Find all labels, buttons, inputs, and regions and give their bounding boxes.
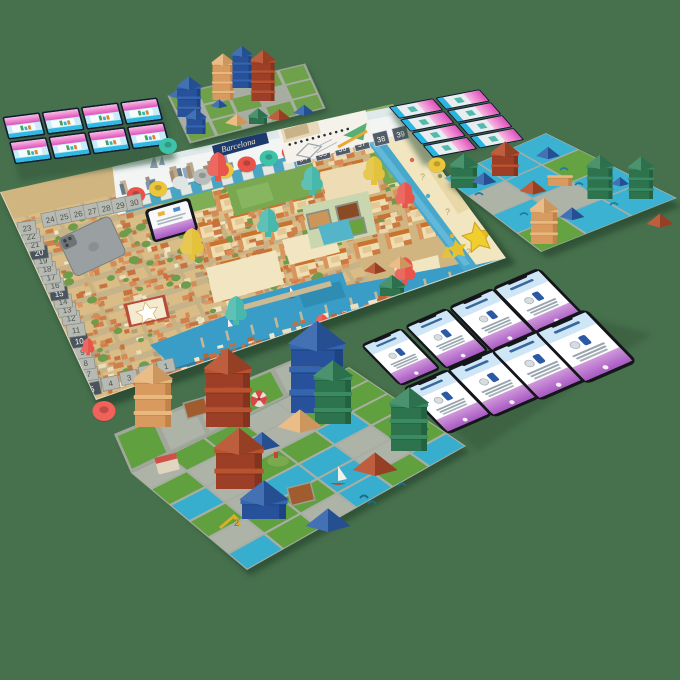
svg-text:?: ? [445, 207, 450, 217]
svg-text:2: 2 [234, 518, 239, 528]
svg-text:?: ? [420, 172, 425, 182]
svg-text:?: ? [466, 247, 471, 257]
svg-text:23: 23 [22, 223, 33, 233]
